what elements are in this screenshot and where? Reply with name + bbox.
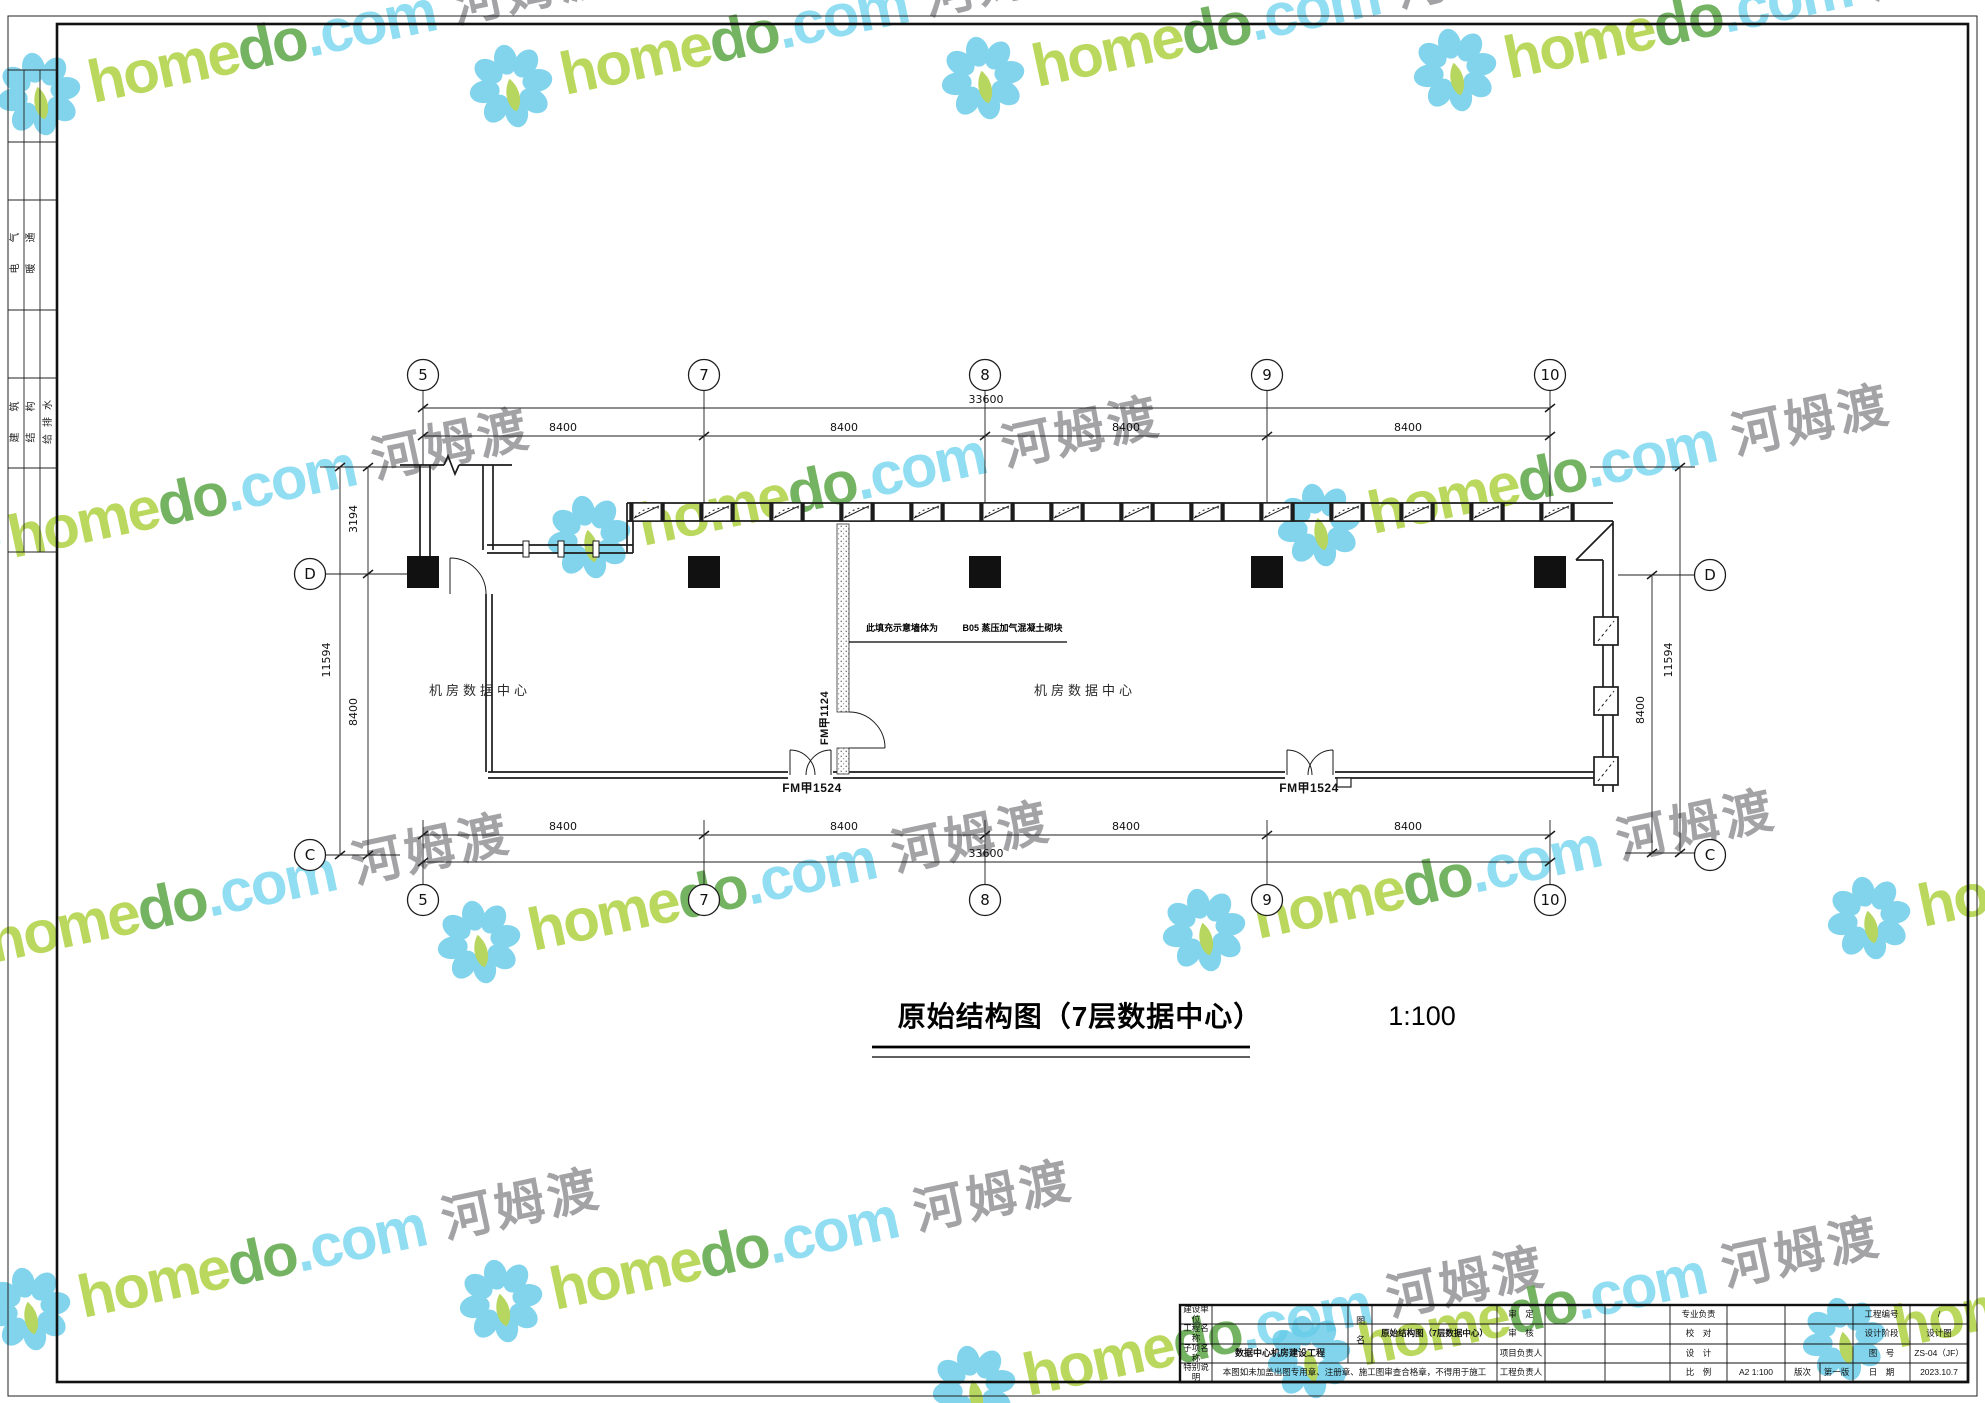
tb-label-note: 特别说明 [1180, 1363, 1212, 1382]
tb-label-scale: 比 例 [1670, 1363, 1727, 1382]
tb-label-project: 工程名称 [1180, 1324, 1212, 1344]
tb-value-edition: 第一版 [1820, 1363, 1853, 1382]
wall-note-lead: 此填充示意墙体为 [852, 621, 952, 636]
drawing-title: 原始结构图（7层数据中心） [880, 997, 1280, 1037]
tb-value-stage: 设计图 [1910, 1324, 1968, 1344]
tb-label-approve: 审 定 [1497, 1305, 1545, 1324]
tb-value-note: 本图如未加盖出图专用章、注册章、施工图审查合格章，不得用于施工 [1212, 1363, 1497, 1382]
drawing-sheet: homedo.com河姆渡 homedo.com河姆渡 homedo.com河姆… [0, 0, 1985, 1403]
tb-label-stage: 设计阶段 [1853, 1324, 1910, 1344]
door-label-fm1124: FM甲1124 [818, 683, 832, 753]
tb-label-edition: 版次 [1785, 1363, 1820, 1382]
tb-value-subproject: 数据中心机房建设工程 [1212, 1344, 1348, 1363]
text-overlay: 电气 暖通 建筑 结构 给排水 机房数据中心 机房数据中心 此填充示意墙体为 B… [0, 0, 1985, 1403]
wall-note-spec: B05 蒸压加气混凝土砌块 [950, 621, 1075, 636]
door-label-fm1524-left: FM甲1524 [777, 781, 847, 797]
strip-cell-plumbing: 给排水 [41, 367, 57, 477]
drawing-scale: 1:100 [1372, 997, 1472, 1037]
tb-label-design: 设 计 [1670, 1344, 1727, 1363]
tb-label-project-no: 工程编号 [1853, 1305, 1910, 1324]
tb-label-date: 日 期 [1853, 1363, 1910, 1382]
tb-value-project-no: / [1910, 1305, 1968, 1324]
door-label-fm1524-right: FM甲1524 [1274, 781, 1344, 797]
tb-label-drawing-no: 图 号 [1853, 1344, 1910, 1363]
tb-value-date: 2023.10.7 [1910, 1363, 1968, 1382]
strip-cell-structure: 结构 [24, 367, 40, 477]
tb-label-proofread: 校 对 [1670, 1324, 1727, 1344]
tb-value-scale: A2 1:100 [1727, 1363, 1785, 1382]
tb-label-project-engineer: 工程负责人 [1497, 1363, 1545, 1382]
tb-value-drawing-no: ZS-04（JF） [1910, 1344, 1968, 1363]
tb-label-owner: 建设单位 [1180, 1305, 1212, 1324]
room-label-left: 机房数据中心 [395, 682, 565, 700]
tb-label-discipline-lead: 专业负责 [1670, 1305, 1727, 1324]
tb-label-project-manager: 项目负责人 [1497, 1344, 1545, 1363]
room-label-right: 机房数据中心 [1000, 682, 1170, 700]
tb-drawing-name-value: 原始结构图（7层数据中心） [1372, 1305, 1497, 1363]
strip-cell-architecture: 建筑 [8, 367, 24, 477]
tb-label-subproject: 子项名称 [1180, 1344, 1212, 1363]
tb-drawing-name-label: 图名 [1348, 1310, 1372, 1360]
strip-cell-hvac: 暖通 [24, 198, 40, 308]
tb-label-check: 审 核 [1497, 1324, 1545, 1344]
strip-cell-electrical: 电气 [8, 198, 24, 308]
